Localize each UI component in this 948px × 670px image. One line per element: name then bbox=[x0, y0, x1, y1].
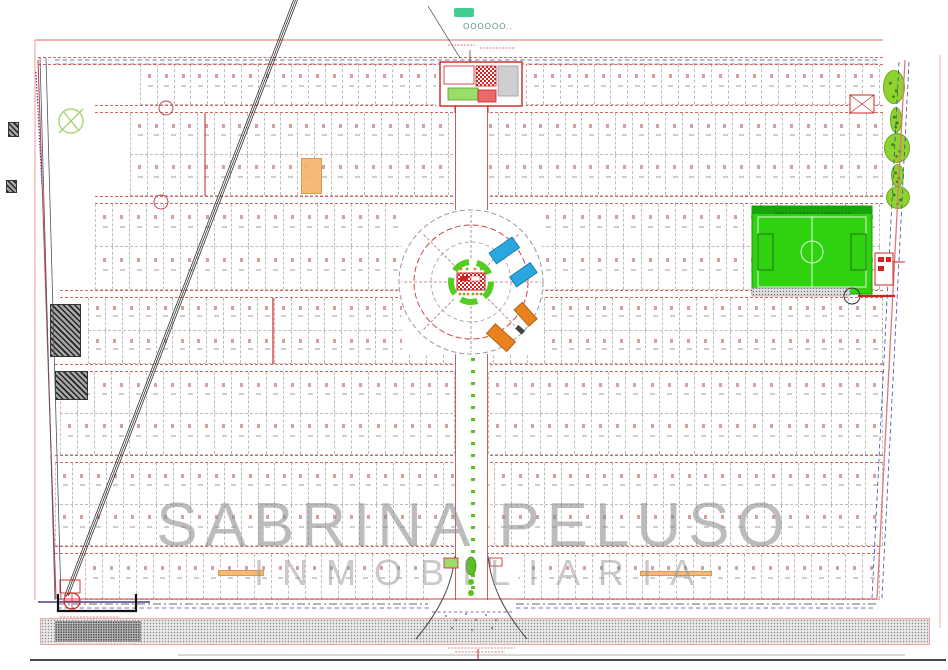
perimeter-road-strip bbox=[40, 618, 930, 645]
central-avenue-north bbox=[455, 62, 488, 210]
street bbox=[95, 196, 883, 204]
highlighted-lot bbox=[301, 158, 322, 194]
green-median bbox=[471, 358, 475, 596]
roundabout-area-mask bbox=[402, 205, 542, 355]
logo-chip bbox=[454, 8, 474, 17]
hatched-marker bbox=[8, 122, 19, 137]
logo-mark: OOOOOO bbox=[463, 22, 506, 31]
tree-icon bbox=[890, 107, 902, 133]
tree-icon bbox=[891, 164, 904, 187]
highlighted-lot bbox=[218, 570, 264, 576]
site-plan-canvas: OOOOOO.. bbox=[0, 0, 948, 670]
central-avenue-south bbox=[455, 354, 488, 600]
logo-text: OOOOOO.. bbox=[438, 22, 538, 31]
road-strip-dark-patch bbox=[55, 621, 141, 642]
tree-icon bbox=[886, 186, 910, 209]
hatched-reserve-lot bbox=[50, 304, 81, 357]
highlighted-lot bbox=[640, 571, 712, 576]
tree-icon bbox=[884, 133, 910, 163]
logo-suffix: .. bbox=[506, 22, 512, 31]
hatched-marker bbox=[6, 180, 17, 193]
hatched-reserve-lot bbox=[55, 371, 88, 400]
tree-icon bbox=[883, 70, 905, 104]
